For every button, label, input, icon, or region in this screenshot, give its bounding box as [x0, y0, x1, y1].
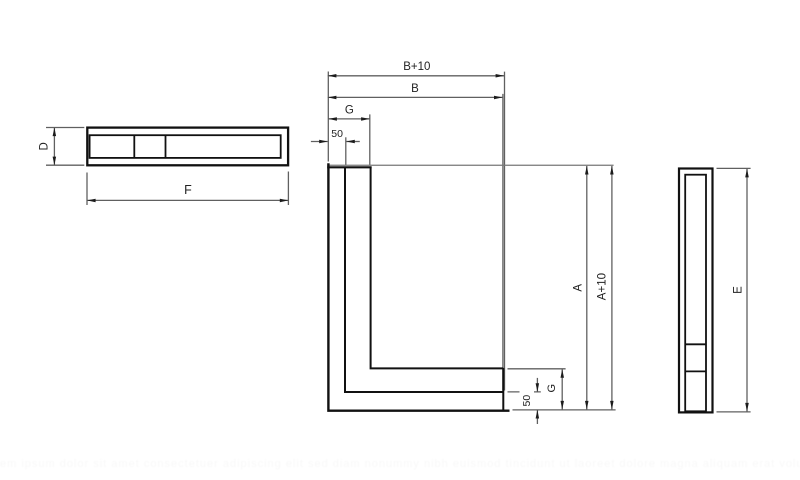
svg-text:A: A — [573, 284, 585, 292]
svg-text:E: E — [733, 286, 745, 294]
svg-text:G: G — [546, 384, 558, 393]
svg-text:B: B — [411, 83, 419, 95]
svg-text:F: F — [184, 183, 192, 197]
svg-text:B+10: B+10 — [403, 61, 430, 73]
svg-text:A+10: A+10 — [596, 273, 608, 300]
svg-text:D: D — [39, 142, 51, 150]
svg-text:G: G — [345, 104, 354, 116]
svg-text:50: 50 — [521, 395, 533, 407]
svg-text:50: 50 — [331, 128, 343, 140]
